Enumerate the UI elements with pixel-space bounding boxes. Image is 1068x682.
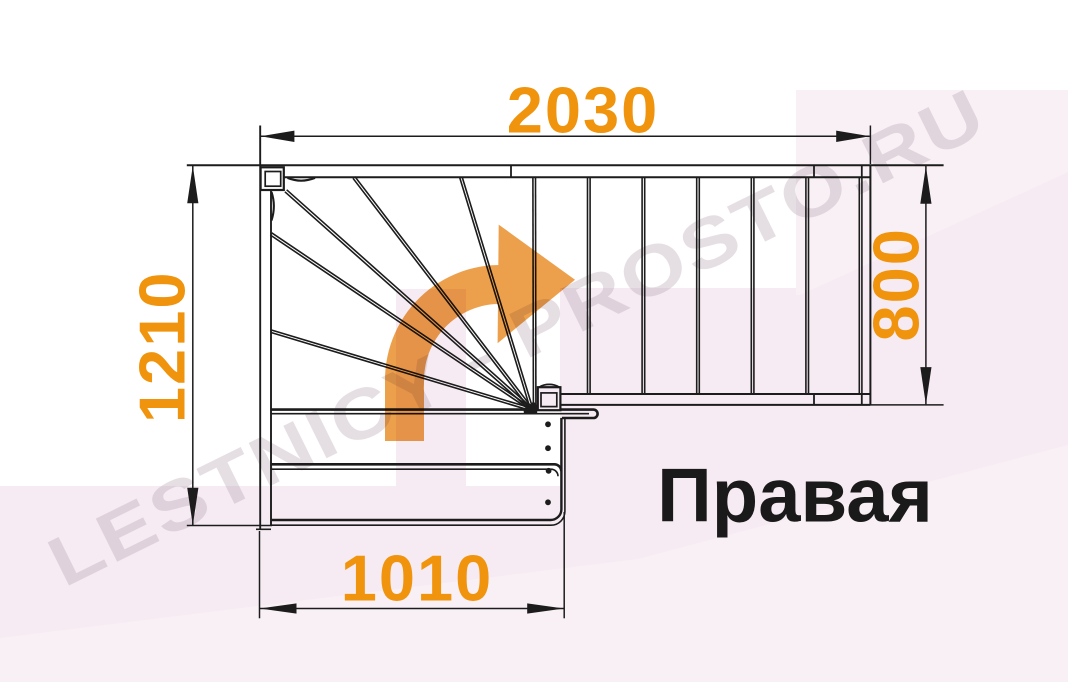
svg-text:2030: 2030	[507, 74, 660, 147]
svg-text:1010: 1010	[341, 542, 494, 615]
svg-text:Правая: Правая	[657, 454, 933, 539]
svg-text:1210: 1210	[126, 270, 199, 423]
svg-text:800: 800	[860, 227, 933, 341]
